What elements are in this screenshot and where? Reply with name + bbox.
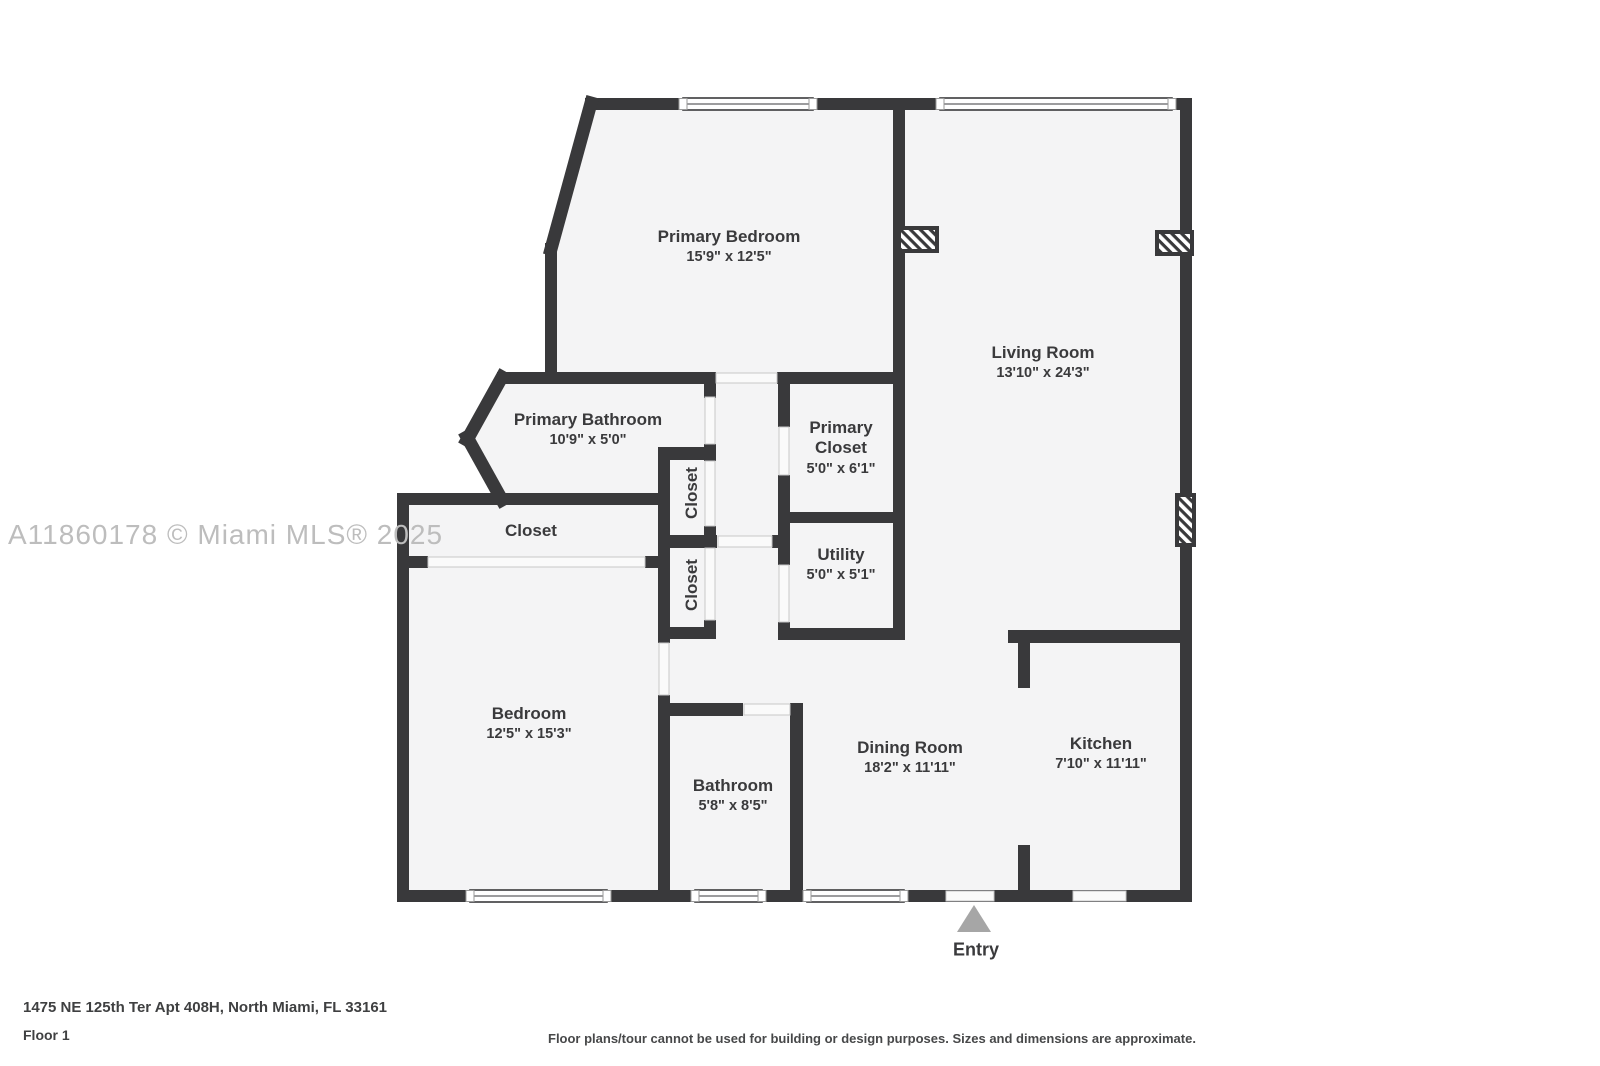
room-dims: 7'10" x 11'11" [1055,757,1147,774]
room-dims: 5'0" x 5'1" [806,568,875,585]
room-label-hall-closet: Closet [505,521,557,541]
room-name: Kitchen [1055,734,1147,754]
slider-door-icon [1157,232,1192,254]
window [803,890,908,902]
floor-plan-page: Primary Bedroom 15'9" x 12'5" Living Roo… [0,0,1600,1066]
room-name: Closet [682,467,702,519]
room-label-closet-lower: Closet [682,559,702,611]
room-label-dining-room: Dining Room 18'2" x 11'11" [857,738,963,778]
room-name: Primary Bathroom [514,410,662,430]
room-name: Bedroom [486,704,571,724]
room-label-bathroom: Bathroom 5'8" x 8'5" [693,776,773,816]
room-name: Primary Bedroom [658,227,801,247]
room-label-primary-closet: Primary Closet 5'0" x 6'1" [785,418,897,478]
room-name: Closet [505,521,557,541]
footer-address: 1475 NE 125th Ter Apt 408H, North Miami,… [23,999,387,1016]
room-label-primary-bathroom: Primary Bathroom 10'9" x 5'0" [514,410,662,450]
room-dims: 5'8" x 8'5" [693,799,773,816]
room-dims: 13'10" x 24'3" [992,366,1095,383]
entry-arrow-icon [957,905,991,932]
room-label-primary-bedroom: Primary Bedroom 15'9" x 12'5" [658,227,801,267]
window [679,98,817,110]
room-name: Bathroom [693,776,773,796]
room-label-closet-upper: Closet [682,467,702,519]
room-name: Primary Closet [785,418,897,459]
footer-disclaimer: Floor plans/tour cannot be used for buil… [548,1031,1196,1046]
room-dims: 12'5" x 15'3" [486,727,571,744]
room-dims: 18'2" x 11'11" [857,761,963,778]
slider-door-icon [899,228,937,251]
room-dims: 5'0" x 6'1" [785,461,897,478]
room-name: Living Room [992,343,1095,363]
window [936,98,1176,110]
window [466,890,611,902]
room-name: Dining Room [857,738,963,758]
footer-floor-label: Floor 1 [23,1027,70,1043]
room-label-kitchen: Kitchen 7'10" x 11'11" [1055,734,1147,774]
slider-door-icon [1177,495,1194,545]
room-dims: 15'9" x 12'5" [658,250,801,267]
room-name: Utility [806,545,875,565]
mls-watermark: A11860178 © Miami MLS® 2025 [8,519,443,551]
room-label-utility: Utility 5'0" x 5'1" [806,545,875,585]
room-name: Closet [682,559,702,611]
entry-label: Entry [953,940,999,961]
room-label-living-room: Living Room 13'10" x 24'3" [992,343,1095,383]
room-label-bedroom: Bedroom 12'5" x 15'3" [486,704,571,744]
room-dims: 10'9" x 5'0" [514,433,662,450]
window [691,890,766,902]
